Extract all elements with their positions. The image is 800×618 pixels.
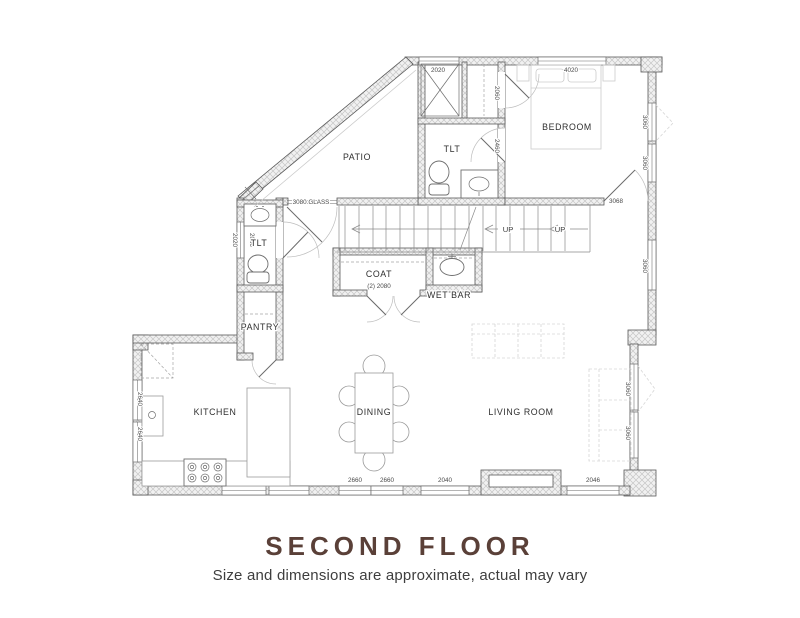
dim-label: 3060: [624, 382, 631, 397]
window: [567, 486, 619, 495]
window: [371, 486, 403, 495]
room-label-patio: PATIO: [343, 152, 371, 162]
stair-break-line: [460, 207, 476, 250]
floor-plan-drawing: 2020 4020 3060 3060 3068 3060 3060 3060 …: [0, 0, 800, 515]
window: [269, 486, 309, 495]
window: [648, 240, 656, 290]
dim-label: 3060: [641, 115, 648, 130]
casement-indicator: [638, 366, 655, 412]
fireplace: [481, 470, 561, 495]
casement-indicator: [656, 105, 673, 141]
stairs: [337, 205, 590, 252]
dim-label: 3068: [609, 198, 624, 205]
vanity-sink: [244, 204, 276, 226]
nightstand: [517, 65, 529, 81]
dim-label: 2046: [586, 477, 601, 484]
window: [222, 486, 266, 495]
stairs-up-label: UP: [555, 225, 566, 234]
plan-subtitle: Size and dimensions are approximate, act…: [0, 567, 800, 584]
closet-door: [498, 72, 539, 108]
island-counter: [247, 388, 290, 477]
pantry-door: [252, 360, 276, 384]
dim-label: 4020: [564, 67, 579, 74]
toilet: [248, 255, 268, 273]
window: [648, 103, 656, 141]
dim-label: 2640: [136, 427, 143, 442]
room-label-bedroom: BEDROOM: [542, 122, 592, 132]
bath-left-door: [276, 222, 319, 258]
wetbar-sink: [440, 259, 464, 276]
dim-label: 2020: [231, 233, 238, 248]
room-label-pantry: PANTRY: [241, 322, 279, 332]
range: [184, 459, 226, 486]
window: [538, 57, 606, 65]
dim-label: 2460: [493, 139, 500, 154]
room-label-dining: DINING: [357, 407, 391, 417]
window: [648, 144, 656, 182]
dim-label: 3060: [641, 156, 648, 171]
plan-title: SECOND FLOOR: [0, 531, 800, 562]
bedroom-door: [604, 170, 648, 201]
dim-label: 2040: [438, 477, 453, 484]
floor-plan-page: 2020 4020 3060 3060 3068 3060 3060 3060 …: [0, 0, 800, 515]
dim-label: 2640: [136, 392, 143, 407]
dim-label: (2) 2080: [367, 283, 391, 290]
bed: [517, 65, 615, 149]
stairs-up-label: UP: [503, 225, 514, 234]
room-label-coat: COAT: [366, 269, 392, 279]
coat-double-doors: [367, 296, 420, 322]
dim-label: 2660: [380, 477, 395, 484]
dim-label: 2660: [348, 477, 363, 484]
window: [421, 486, 469, 495]
dim-label: 3080 GLASS: [293, 199, 330, 206]
dim-label: 3060: [624, 426, 631, 441]
sectional-sofa: [472, 324, 564, 358]
dim-label: 2060: [493, 86, 500, 101]
nightstand: [603, 65, 615, 81]
patio-glass-door: [287, 201, 337, 258]
room-label-wet-bar: WET BAR: [427, 290, 471, 300]
window: [339, 486, 371, 495]
patio-roof-edge: [254, 70, 416, 207]
vanity-sink: [461, 170, 498, 198]
room-label-living-room: LIVING ROOM: [488, 407, 553, 417]
sink-counter: [142, 396, 163, 436]
room-label-kitchen: KITCHEN: [194, 407, 237, 417]
room-label-bath-upper: TLT: [444, 144, 461, 154]
dim-label: 3060: [641, 259, 648, 274]
toilet: [429, 161, 449, 183]
room-label-bath-left: TLT: [251, 238, 268, 248]
dim-label: 2020: [431, 67, 446, 74]
